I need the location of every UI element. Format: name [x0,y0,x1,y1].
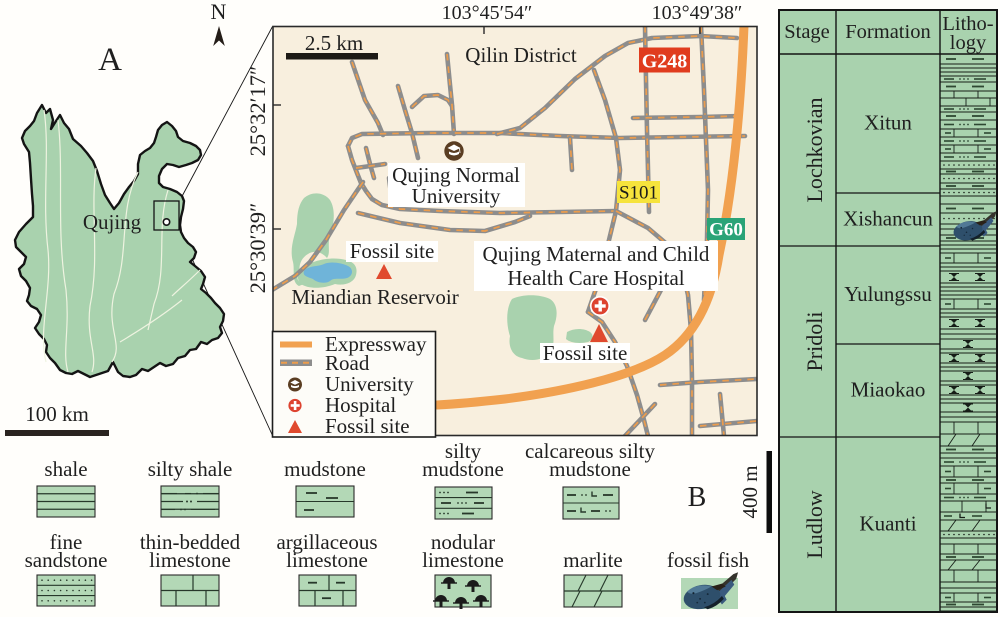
svg-text:Lochkovian: Lochkovian [802,97,827,202]
svg-text:mudstone: mudstone [284,457,366,481]
svg-text:logy: logy [950,32,987,54]
svg-text:Miandian Reservoir: Miandian Reservoir [291,285,458,309]
svg-text:Xitun: Xitun [864,111,912,135]
svg-text:103°49′38″: 103°49′38″ [652,2,743,24]
svg-text:Qujing Maternal and Child: Qujing Maternal and Child [483,242,710,266]
svg-text:Fossil site: Fossil site [543,341,628,365]
svg-text:mudstone: mudstone [422,457,504,481]
svg-text:Formation: Formation [845,21,930,43]
svg-text:25°30′39″: 25°30′39″ [245,203,270,294]
svg-text:Qilin District: Qilin District [465,43,577,67]
svg-text:G248: G248 [642,51,688,73]
svg-text:103°45′54″: 103°45′54″ [442,2,533,24]
svg-text:Fossil site: Fossil site [325,414,410,438]
svg-text:S101: S101 [619,183,658,204]
svg-text:G60: G60 [709,220,743,241]
svg-text:Pridoli: Pridoli [802,312,827,372]
svg-text:limestone: limestone [422,548,504,572]
svg-text:fossil fish: fossil fish [667,548,750,572]
svg-text:sandstone: sandstone [25,548,108,572]
svg-text:Ludlow: Ludlow [802,490,827,559]
svg-text:100 km: 100 km [25,402,89,426]
svg-text:Kuanti: Kuanti [859,512,916,536]
svg-text:25°32′17″: 25°32′17″ [245,66,270,157]
svg-text:Miaokao: Miaokao [851,378,926,402]
svg-text:N: N [211,0,227,24]
svg-text:Qujing: Qujing [83,210,142,234]
svg-text:Yulungssu: Yulungssu [844,282,932,306]
svg-text:Health Care Hospital: Health Care Hospital [507,266,684,290]
svg-text:mudstone: mudstone [549,457,631,481]
svg-text:400 m: 400 m [738,465,762,518]
svg-text:limestone: limestone [286,548,368,572]
svg-text:B: B [688,482,707,513]
svg-text:University: University [412,184,501,208]
svg-text:Xishancun: Xishancun [843,207,933,231]
svg-text:Stage: Stage [784,21,830,43]
svg-text:2.5 km: 2.5 km [305,31,363,55]
svg-text:marlite: marlite [563,548,622,572]
svg-text:Fossil site: Fossil site [350,239,435,263]
svg-text:limestone: limestone [149,548,231,572]
svg-text:shale: shale [44,457,87,481]
svg-text:A: A [98,42,122,78]
svg-text:silty shale: silty shale [148,457,233,481]
